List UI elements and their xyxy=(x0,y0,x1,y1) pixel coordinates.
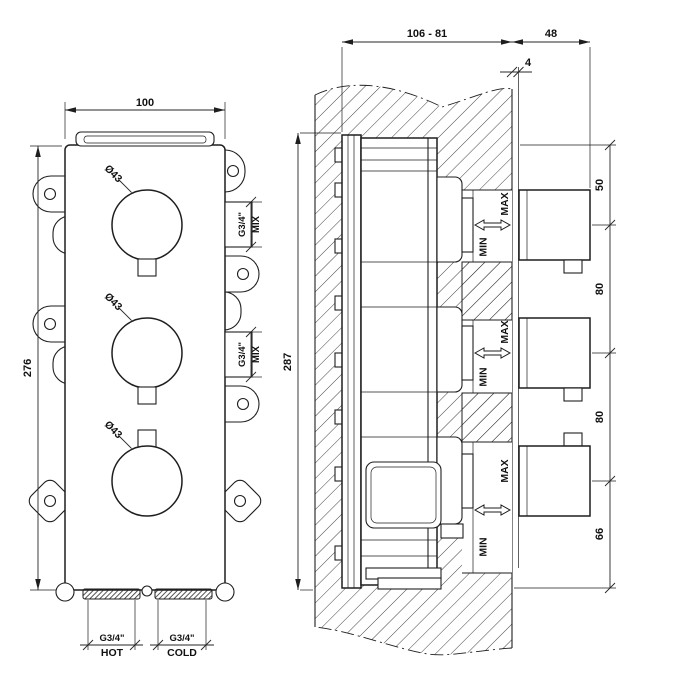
width-dim-text: 100 xyxy=(136,97,154,109)
min-text-1: MIN xyxy=(478,237,490,256)
section-height-dim-text: 287 xyxy=(282,353,294,371)
drawing-canvas: Ø43 Ø43 Ø43 100 xyxy=(0,0,700,700)
knob-depth-dim-text: 48 xyxy=(545,28,557,40)
mix-size-text-2: G3/4" xyxy=(237,342,248,367)
cold-inlet-label: G3/4" COLD xyxy=(150,600,214,659)
corner-hole-left xyxy=(56,583,74,601)
center-notch xyxy=(142,586,152,596)
cartridge-collar-1 xyxy=(462,198,473,252)
wall-block-2 xyxy=(462,393,512,442)
cold-inlet-stub xyxy=(155,589,212,599)
corner-hole-right xyxy=(216,583,234,601)
front-view: Ø43 Ø43 Ø43 100 xyxy=(22,97,264,659)
body-foot xyxy=(366,568,441,579)
hot-size-text: G3/4" xyxy=(99,633,124,644)
cold-name-text: COLD xyxy=(167,647,197,659)
dim-finish-gap-4: 4 xyxy=(500,57,532,77)
side-view: MIN MAX MIN MAX MIN MAX xyxy=(282,28,616,655)
min-text-3: MIN xyxy=(478,537,490,556)
spacing-dim-text-4: 66 xyxy=(594,528,606,540)
back-plate xyxy=(342,135,361,588)
mix-name-text-1: MIX xyxy=(251,215,262,233)
volume-cartridge xyxy=(366,462,441,528)
max-text-1: MAX xyxy=(499,192,511,215)
cartridge-plate-2 xyxy=(437,307,462,392)
cold-size-text: G3/4" xyxy=(169,633,194,644)
technical-drawing-page: Ø43 Ø43 Ø43 100 xyxy=(0,0,700,700)
height-dim-text: 276 xyxy=(22,359,34,377)
mix-name-text-2: MIX xyxy=(251,345,262,363)
hot-inlet-label: G3/4" HOT xyxy=(80,600,143,659)
max-text-3: MAX xyxy=(499,459,511,482)
hot-inlet-stub xyxy=(83,589,140,599)
knob-2 xyxy=(519,318,590,401)
spacing-dim-text-2: 80 xyxy=(594,283,606,295)
max-text-2: MAX xyxy=(499,320,511,343)
finish-gap-dim-text: 4 xyxy=(525,57,532,69)
spacing-dim-text-3: 80 xyxy=(594,411,606,423)
depth-dim-text: 106 - 81 xyxy=(407,28,447,40)
min-text-2: MIN xyxy=(478,367,490,386)
dim-knob-depth-48: 48 xyxy=(512,28,590,188)
wall-block-1 xyxy=(462,262,512,320)
valve-body-section xyxy=(335,135,473,589)
mix-size-text-1: G3/4" xyxy=(237,212,248,237)
hot-name-text: HOT xyxy=(101,647,124,659)
cartridge-collar-3 xyxy=(462,454,473,508)
knob-1 xyxy=(519,190,590,273)
knob-3 xyxy=(519,433,590,516)
cartridge-collar-2 xyxy=(462,326,473,380)
spacing-dim-text-1: 50 xyxy=(594,179,606,191)
cartridge-plate-1 xyxy=(437,177,462,262)
top-cap xyxy=(76,132,214,146)
